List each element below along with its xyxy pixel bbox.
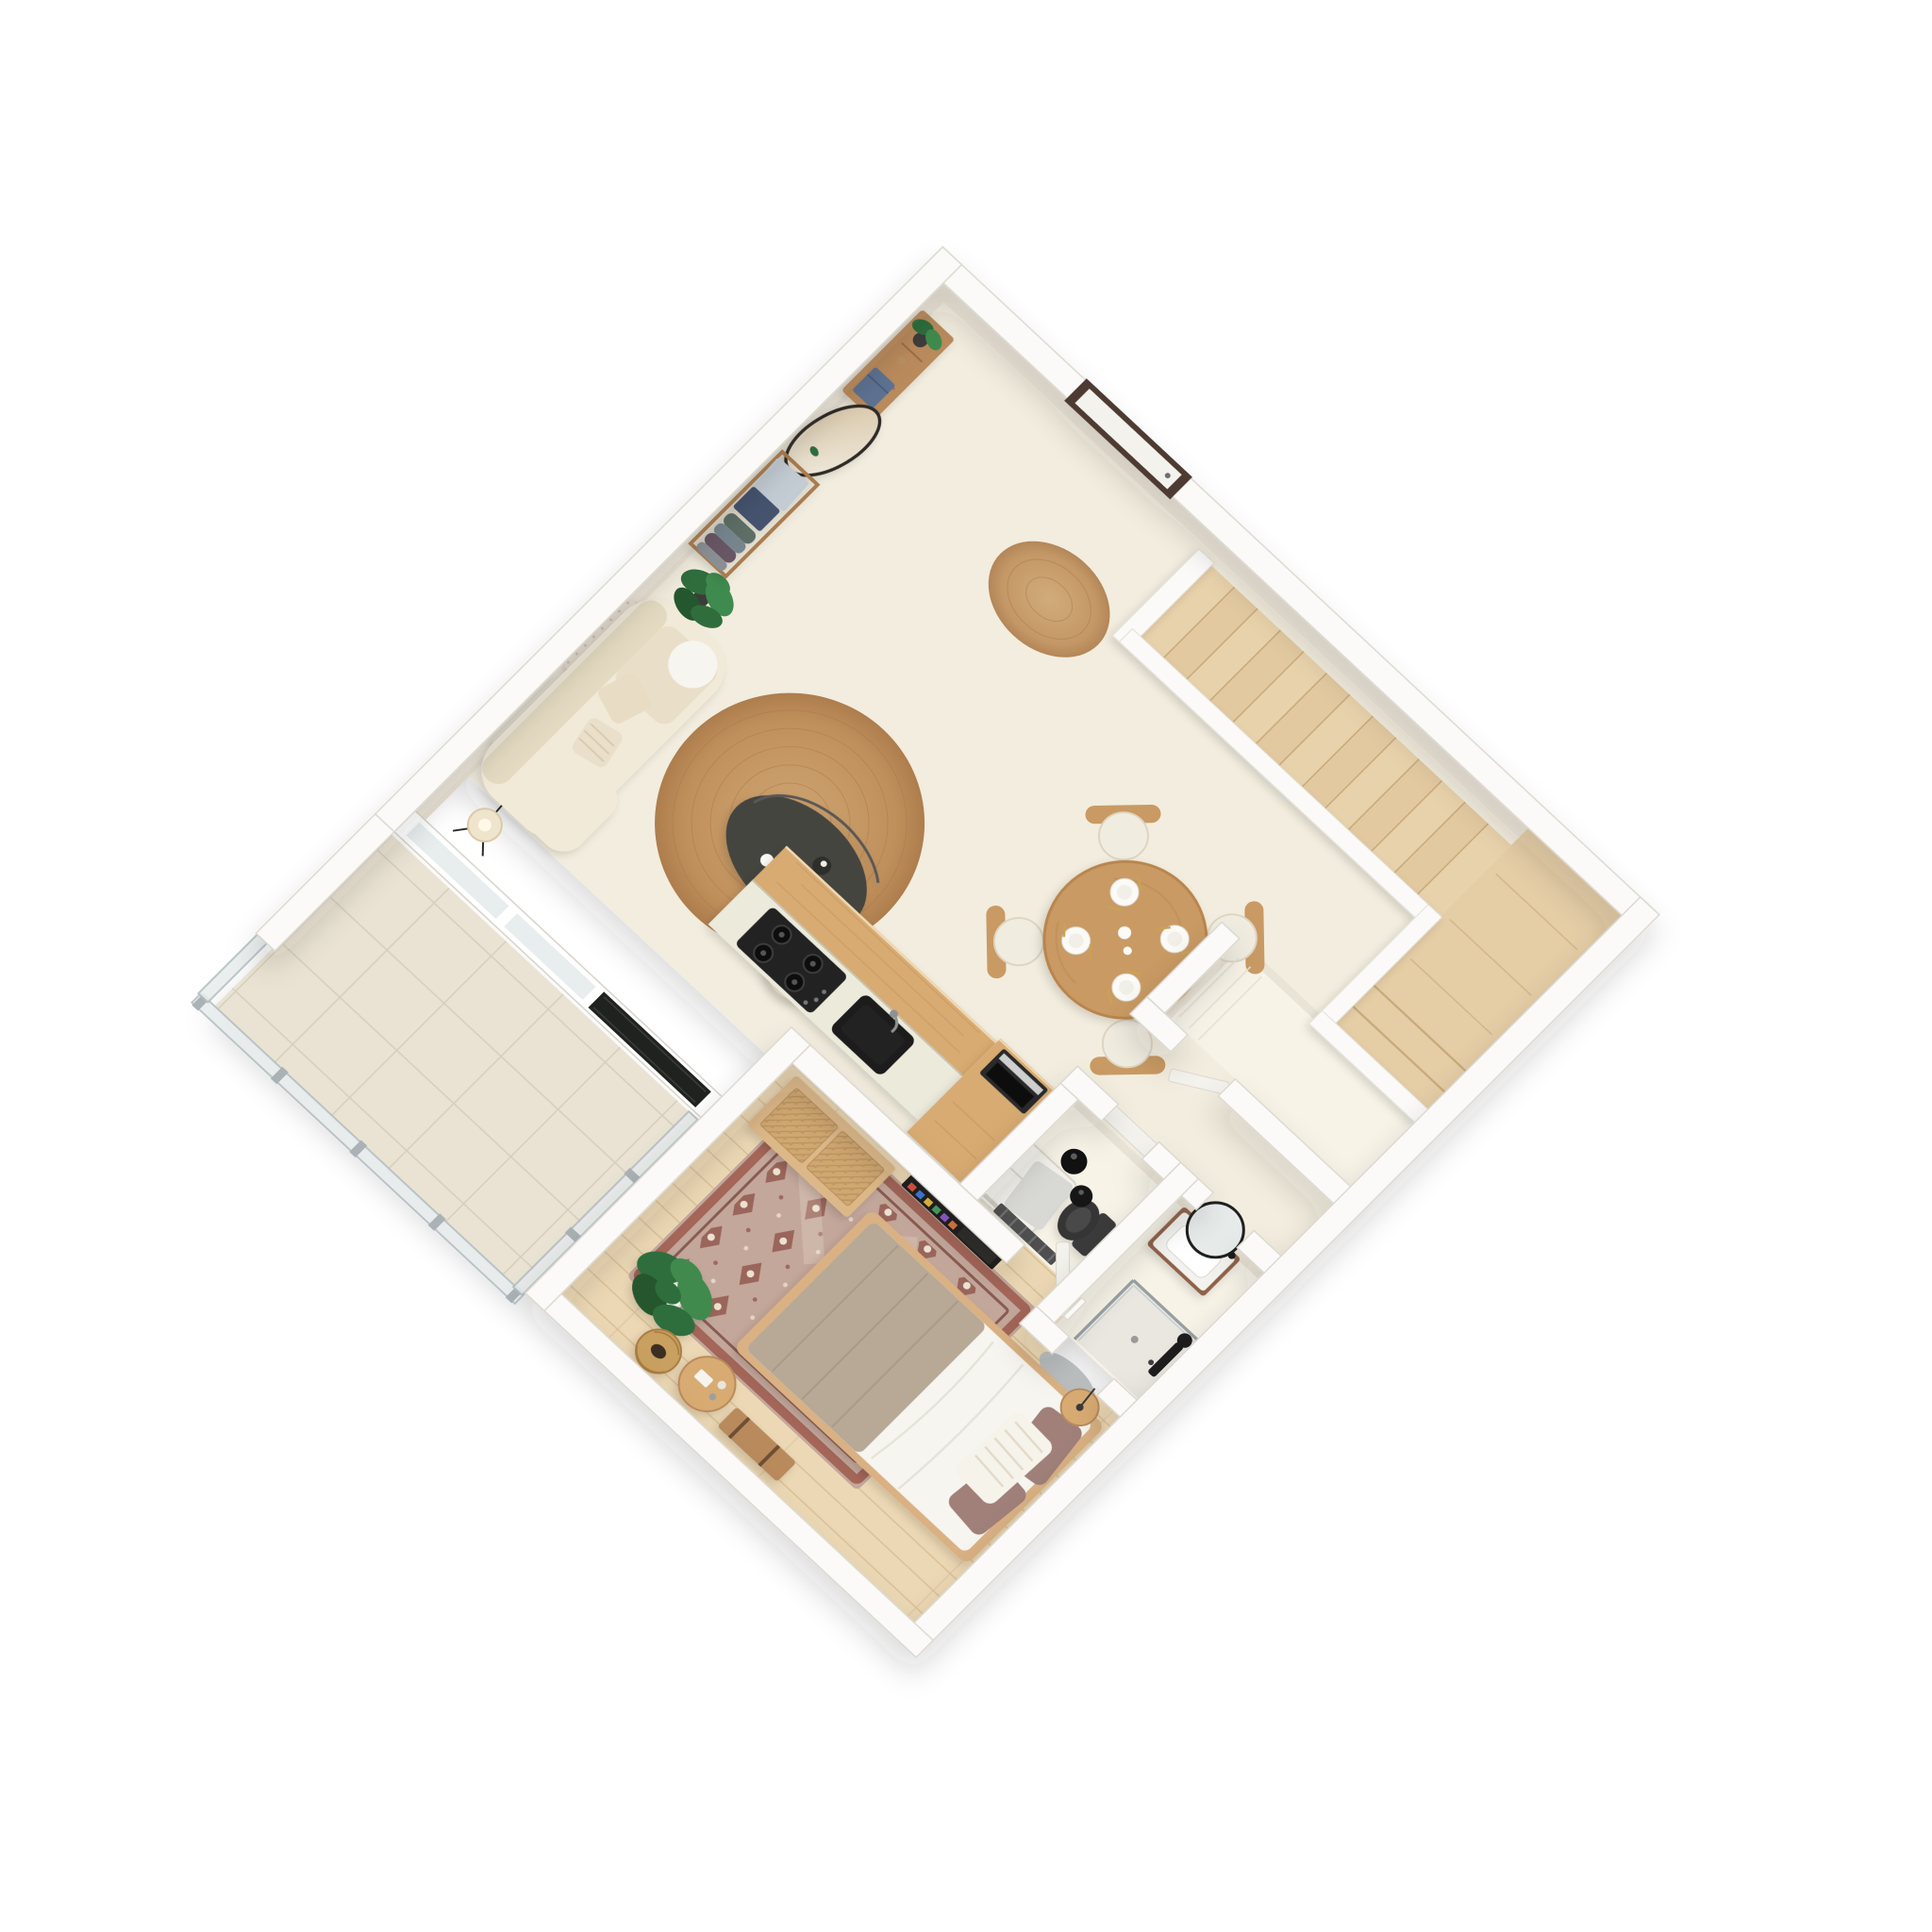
floor-plan-render — [0, 0, 1932, 1932]
floor-plan-svg — [0, 0, 1932, 1932]
